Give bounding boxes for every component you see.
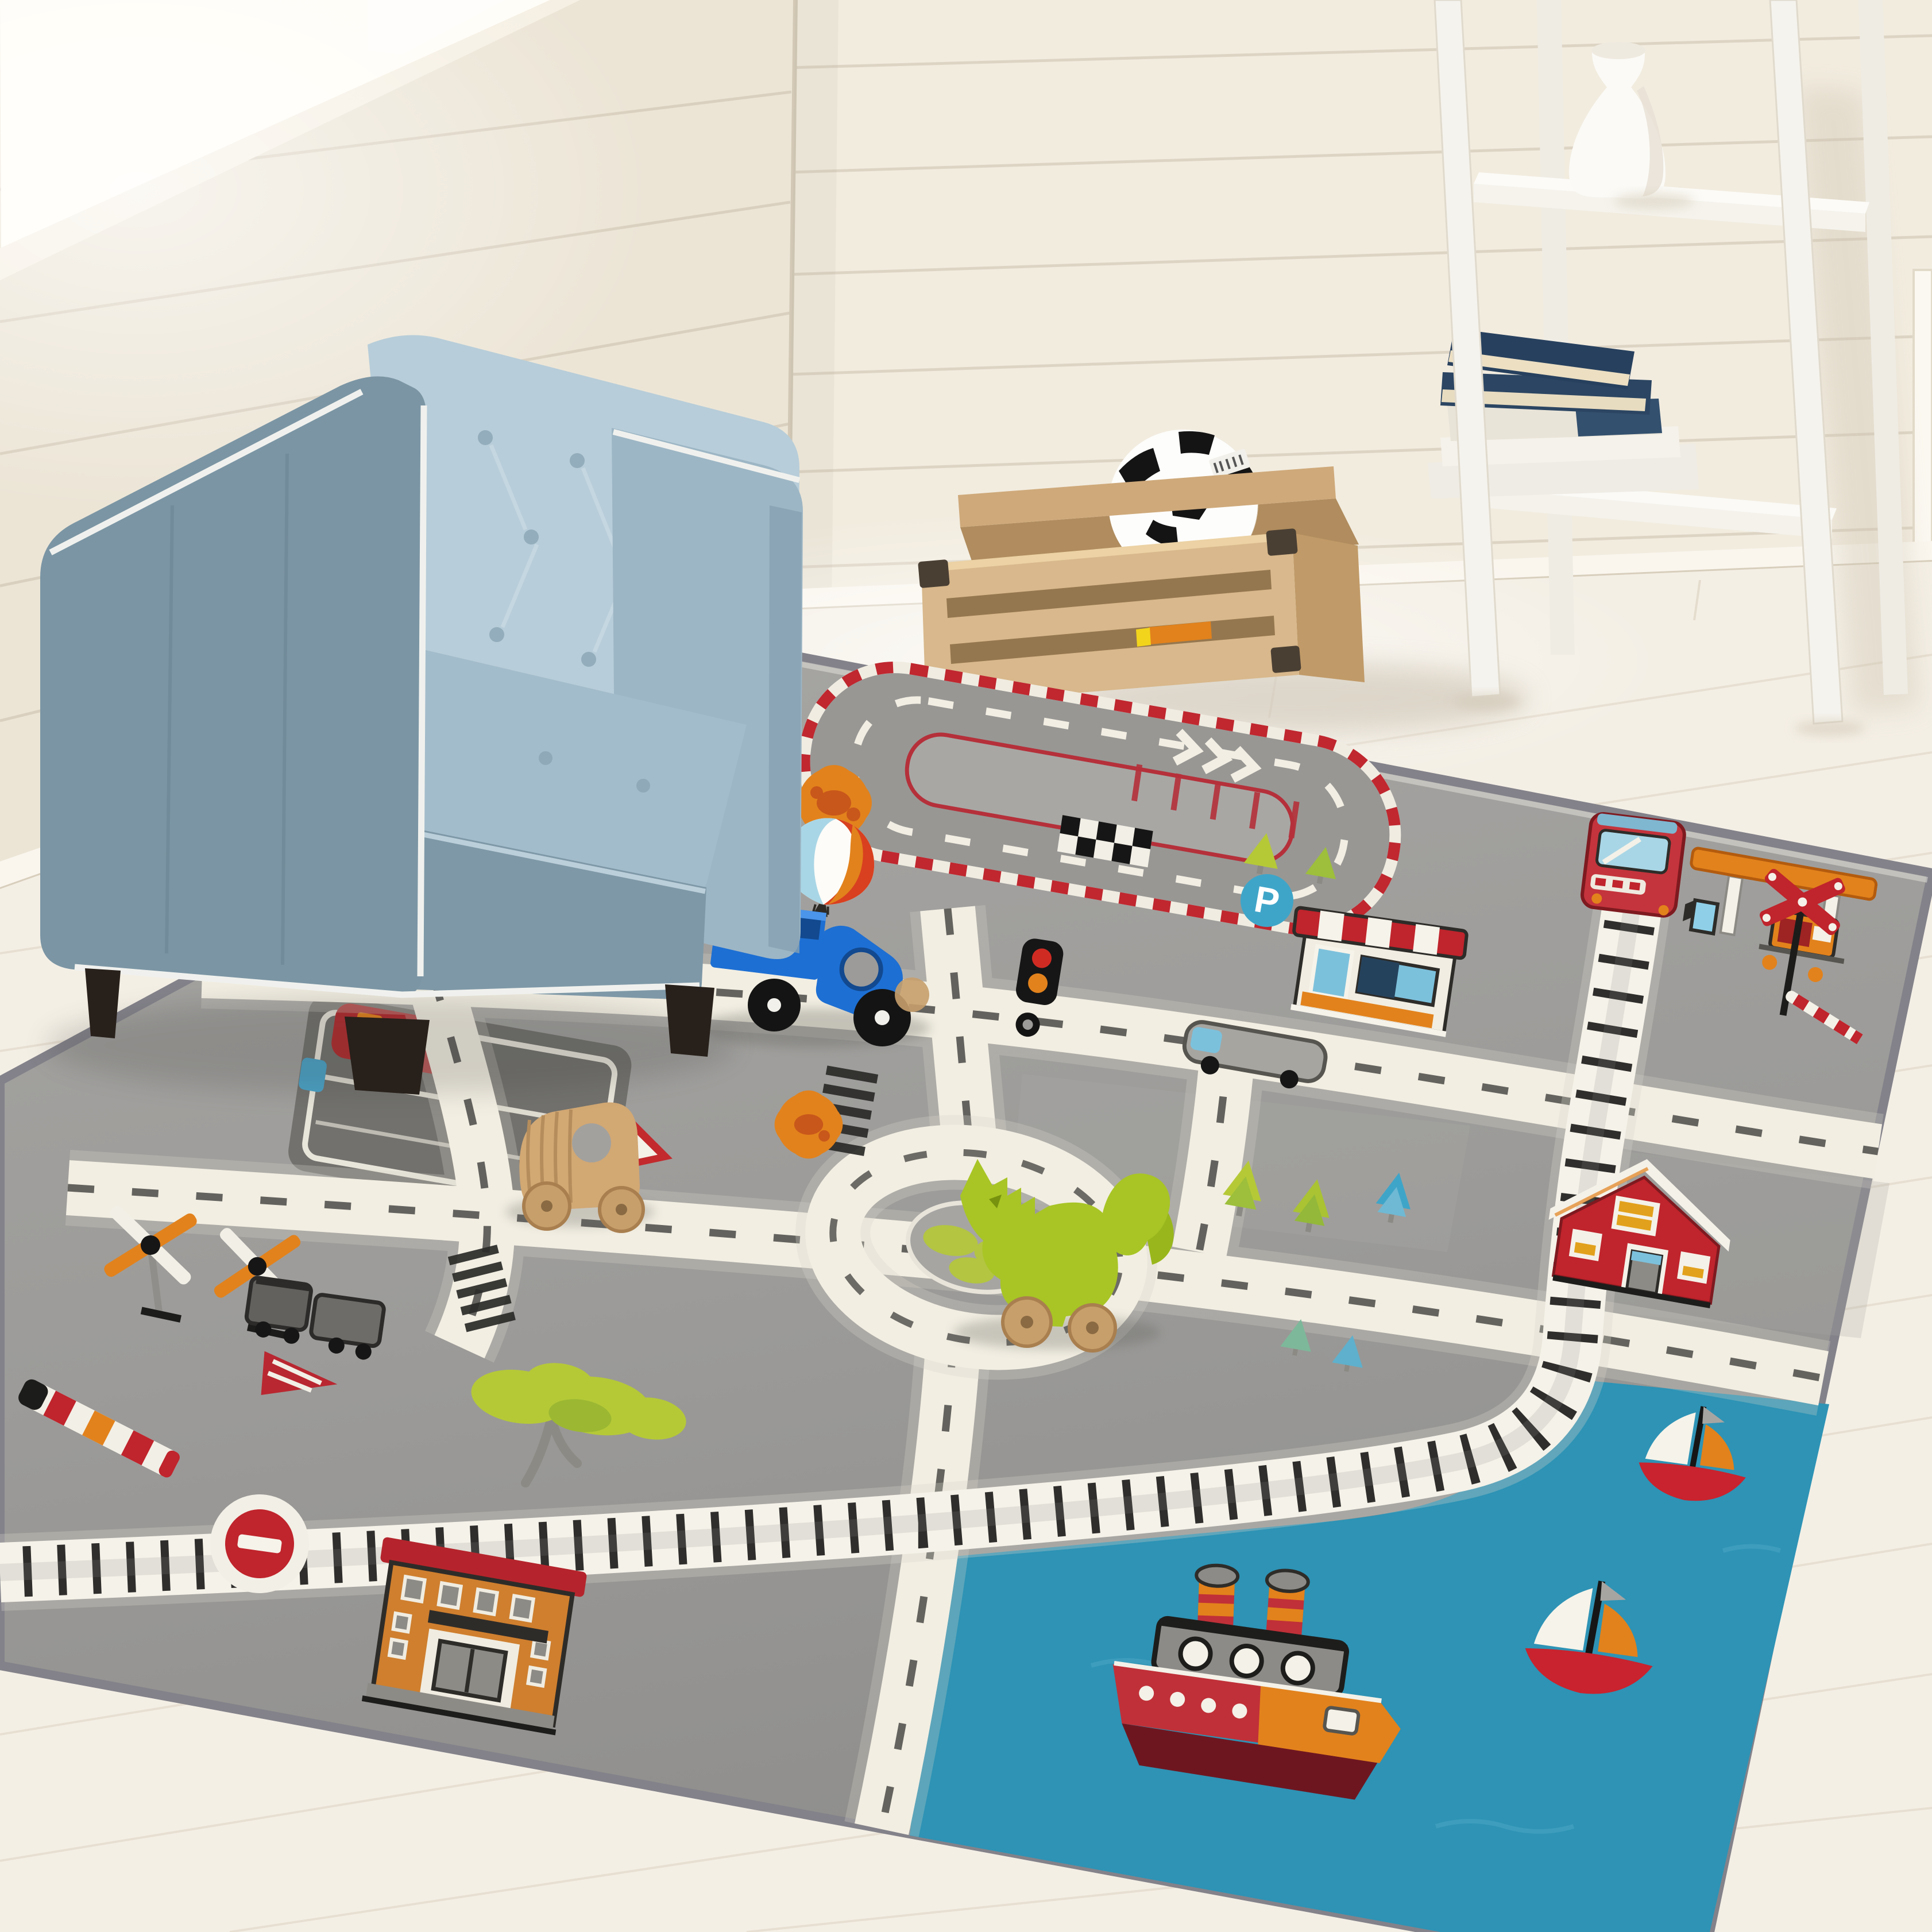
tram bbox=[1581, 812, 1686, 917]
wooden-toy-car bbox=[505, 1102, 655, 1231]
playroom-photo: P bbox=[0, 0, 1932, 1932]
toy-through-slat-yellow bbox=[1136, 628, 1151, 647]
shop-window-left bbox=[1311, 946, 1353, 999]
gas-pump-small bbox=[1691, 900, 1718, 933]
truck-cab-window bbox=[840, 948, 883, 991]
crate-right-face bbox=[1292, 533, 1365, 682]
